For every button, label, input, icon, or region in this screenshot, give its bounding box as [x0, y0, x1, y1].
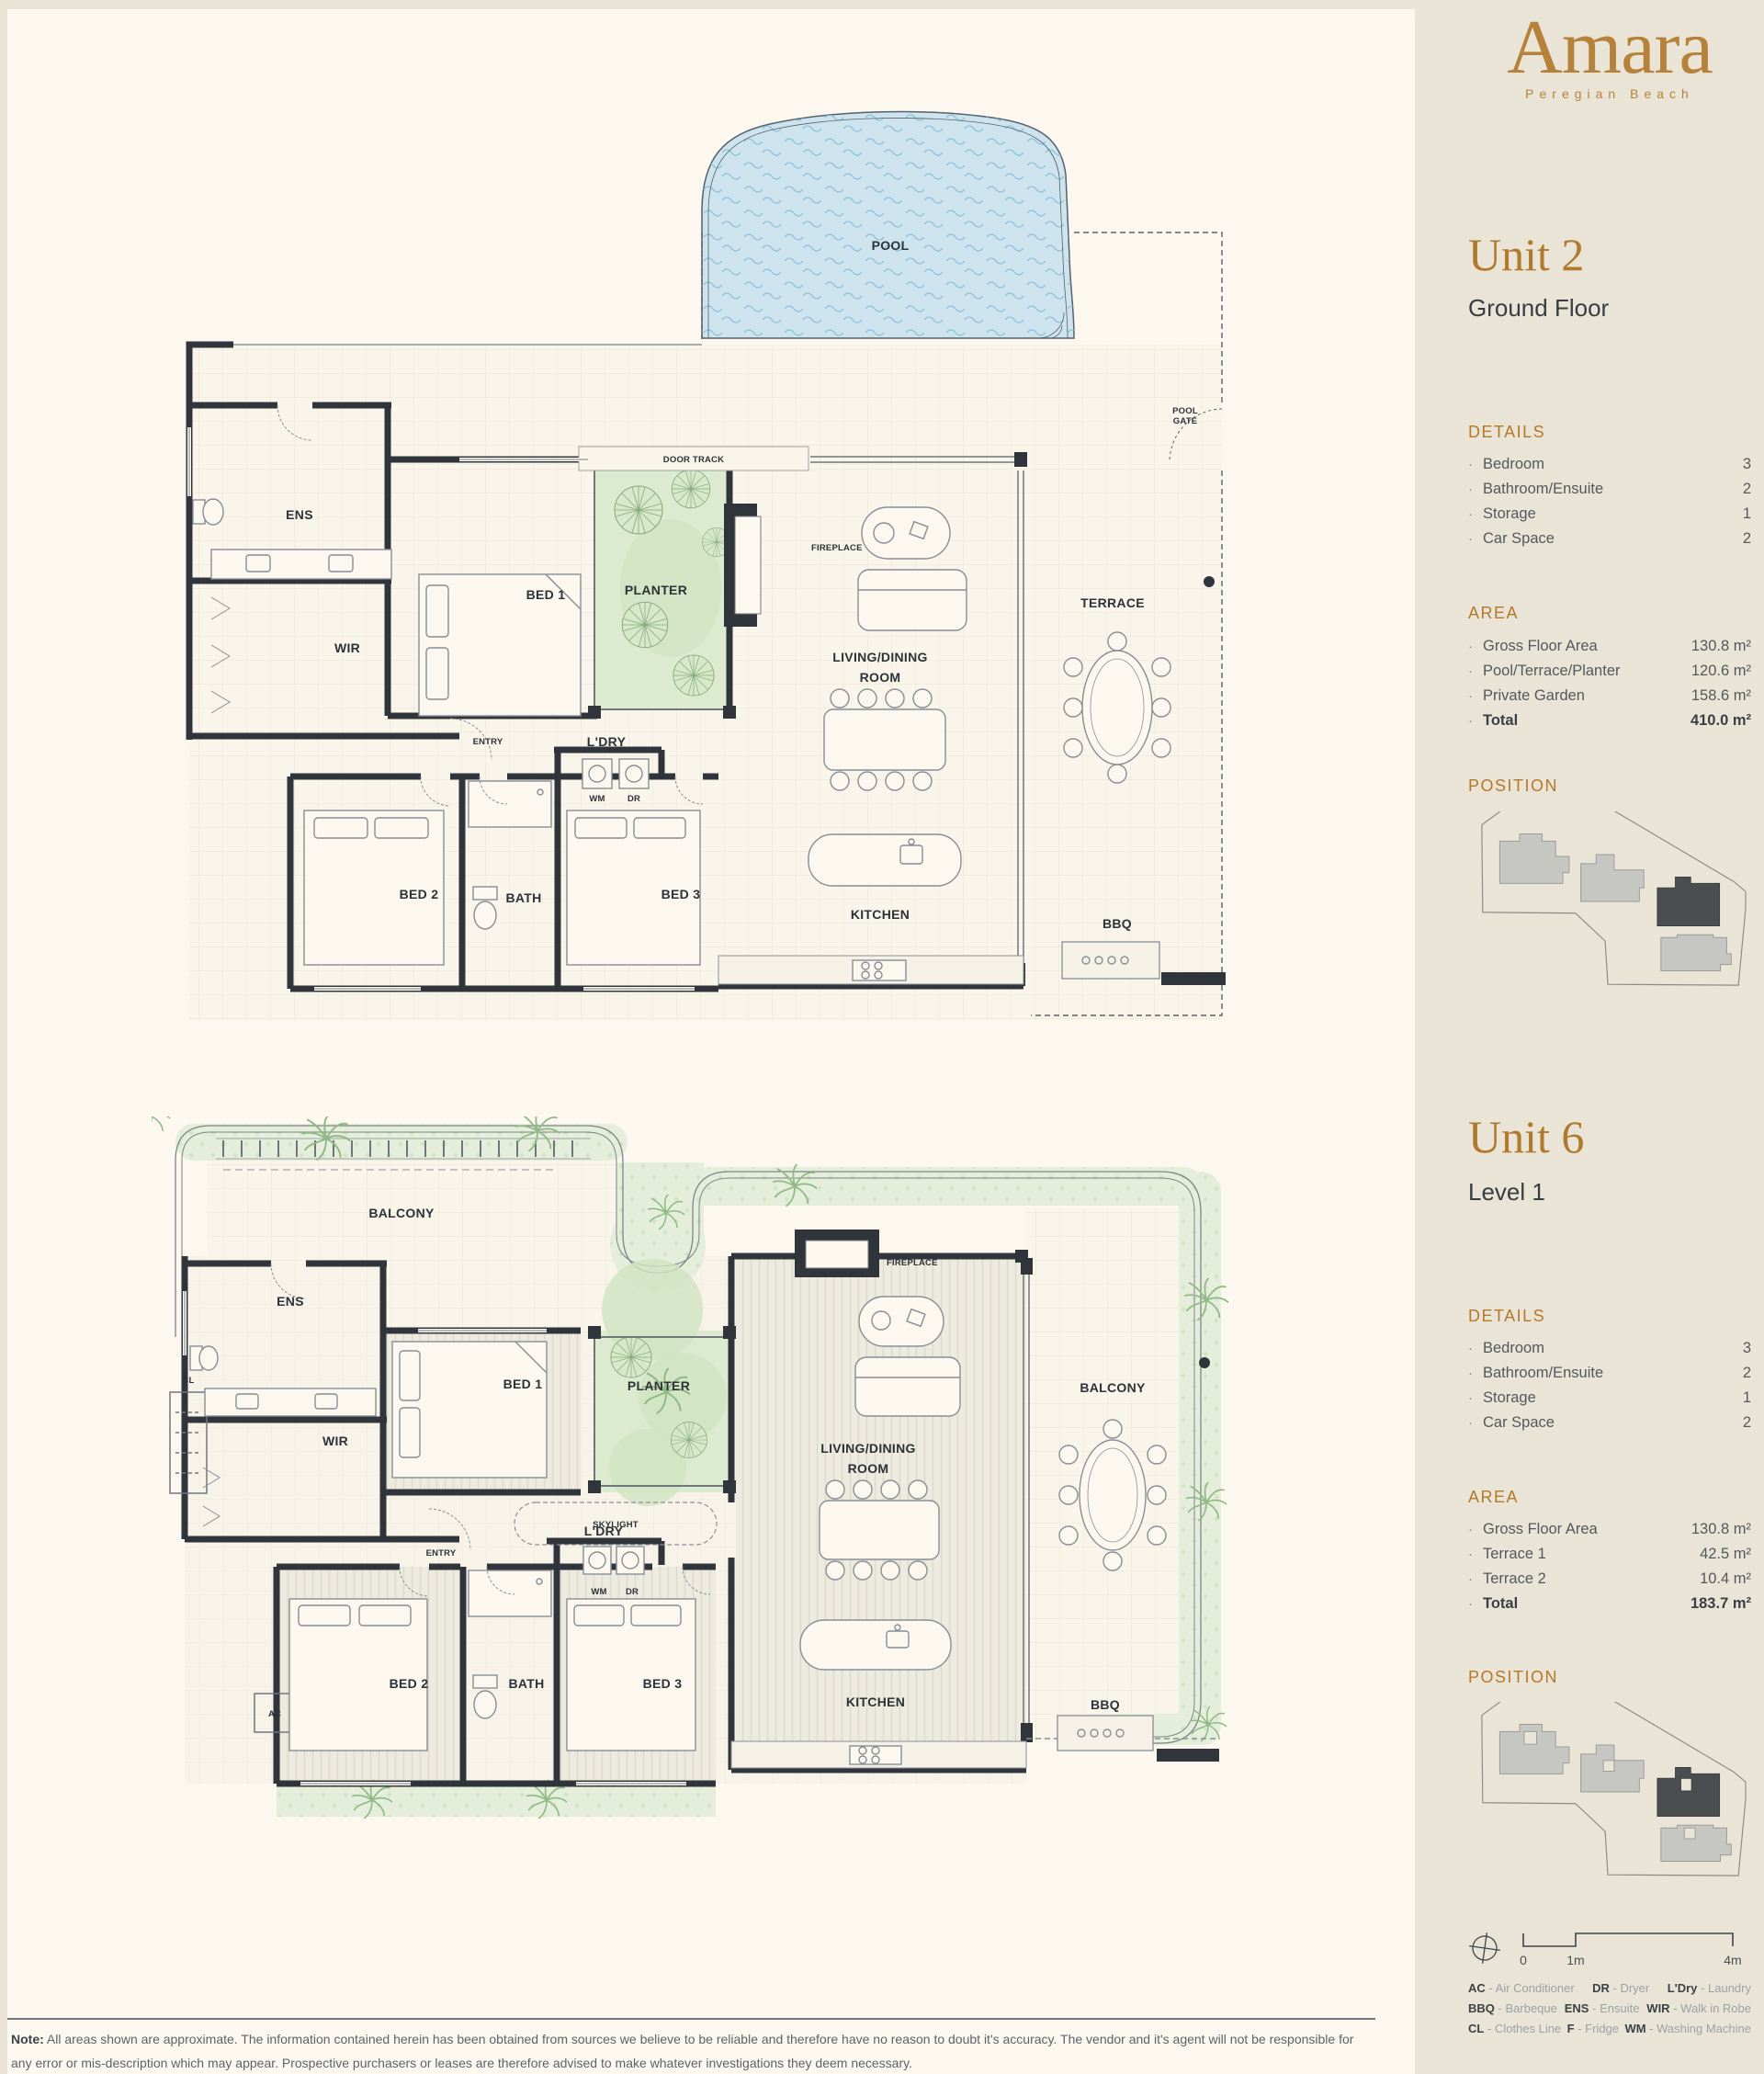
- unit2-label-bbq: BBQ: [1102, 916, 1132, 931]
- legend-item: CL - Clothes Line: [1468, 2022, 1561, 2042]
- unit6-position-heading: POSITION: [1468, 1668, 1751, 1687]
- unit2-label-bed1: BED 1: [526, 587, 566, 602]
- detail-row: ·Car Space2: [1468, 527, 1751, 551]
- unit2-title: Unit 2: [1468, 228, 1751, 281]
- unit2-position-heading: POSITION: [1468, 776, 1751, 796]
- unit2-position-diagram: [1468, 811, 1751, 992]
- unit6-label-bed1: BED 1: [503, 1377, 543, 1391]
- compass-icon: [1466, 1930, 1503, 1966]
- unit2-fireplace: [724, 504, 761, 627]
- building-2: [1581, 855, 1645, 901]
- legend-item: F - Fridge: [1567, 2022, 1619, 2042]
- unit2-label-entry: ENTRY: [473, 737, 503, 747]
- unit6-label-kitchen: KITCHEN: [846, 1694, 905, 1709]
- unit6-label-balcony-top: BALCONY: [368, 1206, 435, 1220]
- disclaimer-note: Note: All areas shown are approximate. T…: [11, 2027, 1374, 2074]
- building-1: [1499, 1725, 1568, 1774]
- unit2-details-heading: DETAILS: [1468, 423, 1751, 442]
- scale-zero: 0: [1520, 1953, 1527, 1967]
- unit2-label-bed2: BED 2: [400, 887, 439, 901]
- brand-logo: Amara Peregian Beach: [1468, 13, 1751, 101]
- unit2-details-list: ·Bedroom3 ·Bathroom/Ensuite2 ·Storage1 ·…: [1468, 452, 1751, 551]
- unit6-position-diagram: [1468, 1702, 1751, 1882]
- scale-four: 4m: [1724, 1953, 1741, 1967]
- unit2-label-ens: ENS: [286, 507, 313, 522]
- unit2-label-pool-gate: POOL: [1172, 406, 1198, 416]
- detail-row: ·Bathroom/Ensuite2: [1468, 1361, 1751, 1386]
- unit2-floorplan: POOL DOOR TRACK POOL GATE FIREPLACE ENS …: [175, 110, 1231, 1029]
- detail-row: ·Car Space2: [1468, 1411, 1751, 1435]
- unit6-label-ldry: L'DRY: [584, 1524, 624, 1538]
- unit6-label-bath: BATH: [508, 1676, 544, 1691]
- building-2: [1581, 1745, 1645, 1792]
- unit2-label-terrace: TERRACE: [1080, 595, 1145, 610]
- area-row: ·Gross Floor Area130.8 m²: [1468, 634, 1751, 659]
- unit6-title: Unit 6: [1468, 1110, 1751, 1163]
- note-body: All areas shown are approximate. The inf…: [11, 2032, 1353, 2070]
- unit2-label-living: LIVING/DINING: [832, 650, 927, 664]
- area-row: ·Gross Floor Area130.8 m²: [1468, 1517, 1751, 1542]
- unit6-fireplace: [795, 1230, 879, 1277]
- unit6-label-bbq: BBQ: [1091, 1697, 1120, 1712]
- unit6-label-balcony-right: BALCONY: [1080, 1380, 1146, 1395]
- detail-row: ·Bedroom3: [1468, 1336, 1751, 1361]
- unit6-label-fireplace: FIREPLACE: [887, 1258, 938, 1268]
- detail-row: ·Bathroom/Ensuite2: [1468, 477, 1751, 502]
- unit6-floorplan: BALCONY ENS CL WIR BED 1 PLANTER FIREPLA…: [152, 1116, 1236, 1842]
- scale-bar: 0 1m 4m: [1516, 1930, 1751, 1970]
- unit6-label-ac: AC: [268, 1709, 281, 1719]
- unit2-label-dr: DR: [628, 794, 640, 804]
- legend-row: BBQ - Barbeque ENS - Ensuite WIR - Walk …: [1468, 2001, 1751, 2022]
- area-row: ·Terrace 142.5 m²: [1468, 1542, 1751, 1567]
- svg-text:ROOM: ROOM: [848, 1461, 889, 1476]
- legend-item: L'Dry - Laundry: [1668, 1981, 1751, 2001]
- brand-name: Amara: [1468, 13, 1751, 83]
- legend-item: WIR - Walk in Robe: [1646, 2001, 1751, 2022]
- unit6-label-wir: WIR: [322, 1434, 348, 1448]
- unit6-area-list: ·Gross Floor Area130.8 m² ·Terrace 142.5…: [1468, 1517, 1751, 1616]
- scale-one: 1m: [1566, 1953, 1584, 1967]
- divider: [7, 2018, 1375, 2020]
- unit6-label-entry: ENTRY: [426, 1548, 457, 1558]
- area-row: ·Private Garden158.6 m²: [1468, 684, 1751, 708]
- unit2-label-planter: PLANTER: [625, 583, 687, 597]
- unit2-label-pool: POOL: [872, 238, 910, 253]
- svg-text:GATE: GATE: [1173, 416, 1197, 426]
- unit6-label-wm: WM: [591, 1587, 606, 1597]
- legend-item: ENS - Ensuite: [1565, 2001, 1640, 2022]
- unit6-label-bed2: BED 2: [390, 1676, 429, 1691]
- legend-item: WM - Washing Machine: [1624, 2022, 1751, 2042]
- legend-row: CL - Clothes Line F - Fridge WM - Washin…: [1468, 2022, 1751, 2042]
- unit2-area-list: ·Gross Floor Area130.8 m² ·Pool/Terrace/…: [1468, 634, 1751, 733]
- abbreviation-legend: AC - Air Conditioner DR - Dryer L'Dry - …: [1468, 1981, 1751, 2042]
- unit6-label-cl: CL: [182, 1376, 194, 1386]
- note-prefix: Note:: [11, 2032, 44, 2046]
- unit6-label-living: LIVING/DINING: [820, 1441, 915, 1456]
- unit2-label-wir: WIR: [334, 640, 360, 655]
- legend-item: DR - Dryer: [1592, 1981, 1649, 2001]
- detail-row: ·Bedroom3: [1468, 452, 1751, 477]
- area-row: ·Terrace 210.4 m²: [1468, 1567, 1751, 1592]
- unit2-label-bed3: BED 3: [661, 887, 701, 901]
- unit6-label-ens: ENS: [277, 1294, 304, 1309]
- unit6-label-dr: DR: [626, 1587, 639, 1597]
- unit6-details-list: ·Bedroom3 ·Bathroom/Ensuite2 ·Storage1 ·…: [1468, 1336, 1751, 1435]
- unit2-label-wm: WM: [589, 794, 605, 804]
- unit6-label-planter: PLANTER: [628, 1378, 690, 1393]
- legend-item: AC - Air Conditioner: [1468, 1981, 1575, 2001]
- unit6-area-heading: AREA: [1468, 1488, 1751, 1507]
- detail-row: ·Storage1: [1468, 1386, 1751, 1411]
- building-4: [1661, 935, 1731, 970]
- legend-row: AC - Air Conditioner DR - Dryer L'Dry - …: [1468, 1981, 1751, 2001]
- unit2-label-kitchen: KITCHEN: [851, 907, 910, 922]
- unit2-label-fireplace: FIREPLACE: [811, 543, 863, 553]
- unit6-details-heading: DETAILS: [1468, 1307, 1751, 1326]
- building-1: [1499, 834, 1568, 884]
- unit6-label-bed3: BED 3: [643, 1676, 683, 1691]
- unit6-floor-label: Level 1: [1468, 1178, 1751, 1207]
- unit2-floor-label: Ground Floor: [1468, 294, 1751, 323]
- unit-highlight: [1657, 878, 1720, 926]
- unit2-label-bath: BATH: [505, 890, 541, 905]
- area-total-row: ·Total410.0 m²: [1468, 708, 1751, 733]
- unit2-area-heading: AREA: [1468, 604, 1751, 623]
- area-row: ·Pool/Terrace/Planter120.6 m²: [1468, 659, 1751, 684]
- area-total-row: ·Total183.7 m²: [1468, 1592, 1751, 1616]
- unit-highlight: [1657, 1768, 1720, 1817]
- unit2-label-door-track: DOOR TRACK: [663, 455, 724, 465]
- detail-row: ·Storage1: [1468, 502, 1751, 527]
- svg-text:ROOM: ROOM: [860, 670, 901, 685]
- unit2-pool: [689, 110, 1084, 340]
- legend-item: BBQ - Barbeque: [1468, 2001, 1557, 2022]
- building-4: [1661, 1825, 1731, 1861]
- unit2-label-ldry: L'DRY: [587, 734, 627, 749]
- brochure-page: POOL DOOR TRACK POOL GATE FIREPLACE ENS …: [0, 0, 1764, 2074]
